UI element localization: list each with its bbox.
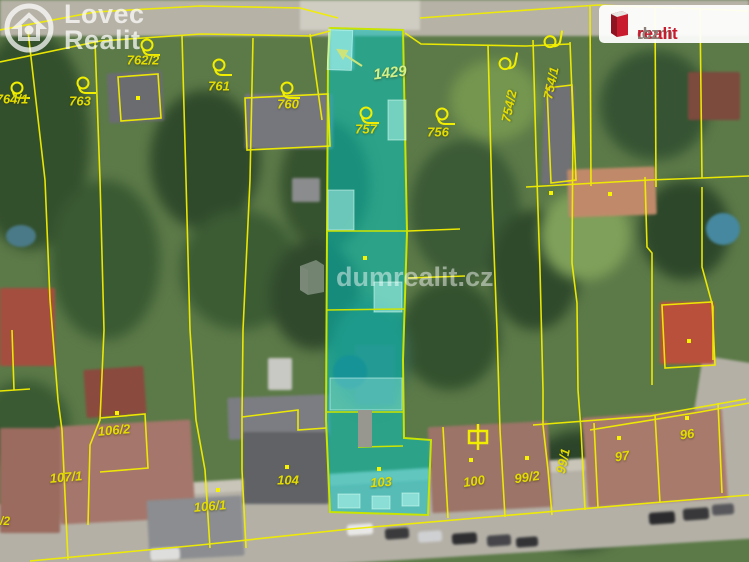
parcel-dot — [216, 488, 220, 492]
badge-text-tld: .cz — [637, 24, 660, 44]
boundary-symbol — [544, 28, 562, 49]
gate-symbol — [469, 424, 487, 450]
boundary-symbol — [499, 50, 517, 71]
parcel-dot — [608, 192, 612, 196]
boundary-symbols — [12, 28, 563, 450]
lovec-watermark-line1: Lovec — [64, 2, 145, 28]
boundary-symbol — [214, 60, 233, 76]
lovec-watermark-line2: Realit — [64, 28, 145, 54]
parcel-dot — [377, 467, 381, 471]
lovec-realit-watermark: Lovec Realit — [4, 2, 145, 53]
parcel-dot — [549, 191, 553, 195]
parcel-dot — [285, 465, 289, 469]
parcel-dot — [685, 416, 689, 420]
parcel-dot — [136, 96, 140, 100]
lovec-realit-logo-icon — [4, 3, 56, 53]
parcel-dot — [617, 436, 621, 440]
dumrealit-badge-icon — [607, 10, 631, 38]
unselected-inner-plot — [358, 410, 372, 447]
parcel-dot — [525, 456, 529, 460]
parcel-dot — [469, 458, 473, 462]
parcel-dot — [687, 339, 691, 343]
boundary-symbol — [437, 109, 456, 125]
boundary-symbol — [78, 78, 97, 94]
cadastral-map-view: 764/1763762/27617601429757756754/2754/11… — [0, 0, 749, 562]
dumrealit-watermark-icon — [294, 258, 328, 296]
boundary-symbol — [12, 83, 31, 99]
parcel-dot — [115, 411, 119, 415]
dumrealit-badge[interactable]: dumrealit.cz — [599, 5, 749, 43]
center-watermark-text: dumrealit.cz — [336, 262, 494, 293]
dumrealit-center-watermark: dumrealit.cz — [294, 258, 494, 296]
